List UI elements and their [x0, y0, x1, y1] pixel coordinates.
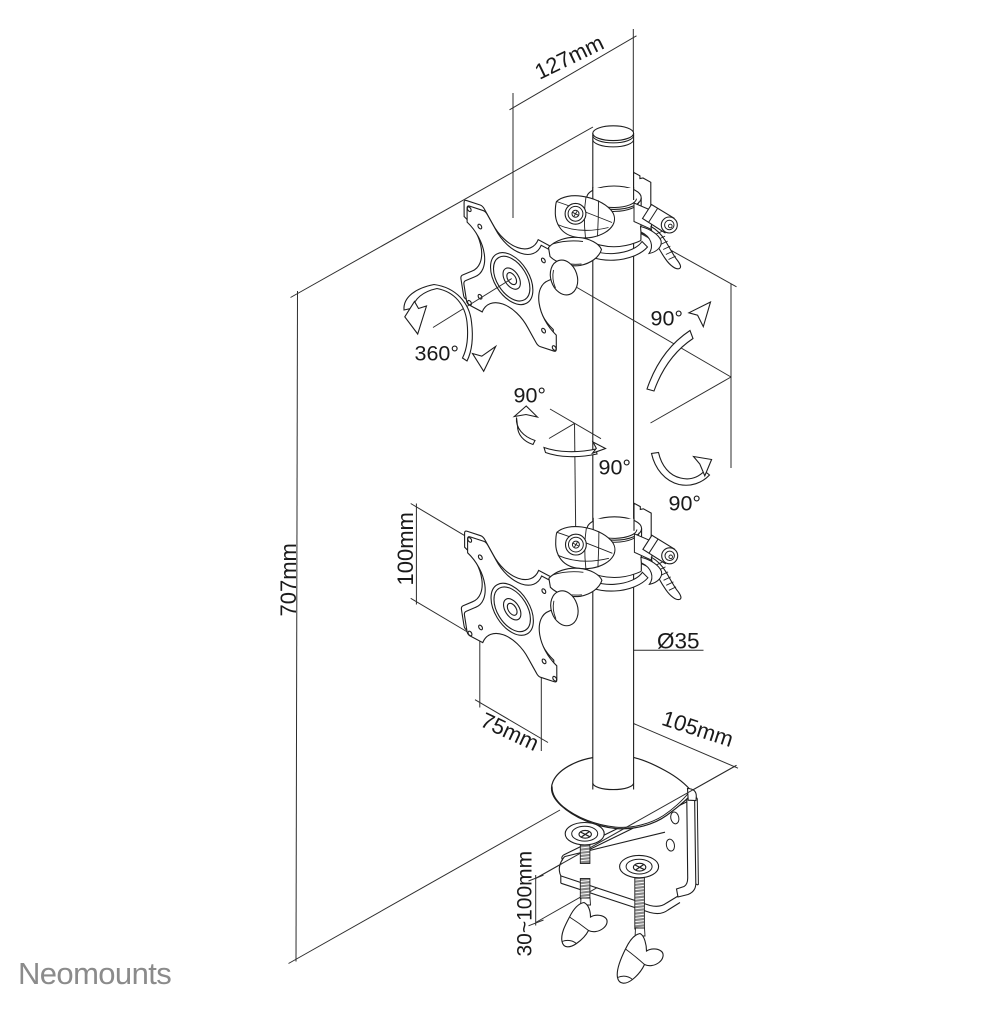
svg-text:90°: 90° [599, 456, 632, 480]
svg-text:90°: 90° [669, 492, 702, 516]
svg-text:360°: 360° [415, 342, 459, 366]
svg-text:707mm: 707mm [276, 543, 301, 616]
svg-text:100mm: 100mm [393, 512, 418, 585]
svg-text:90°: 90° [651, 307, 684, 331]
svg-text:Ø35: Ø35 [657, 629, 700, 654]
svg-text:Neomounts: Neomounts [18, 956, 171, 991]
svg-text:30~100mm: 30~100mm [514, 851, 537, 957]
svg-text:90°: 90° [514, 384, 547, 408]
